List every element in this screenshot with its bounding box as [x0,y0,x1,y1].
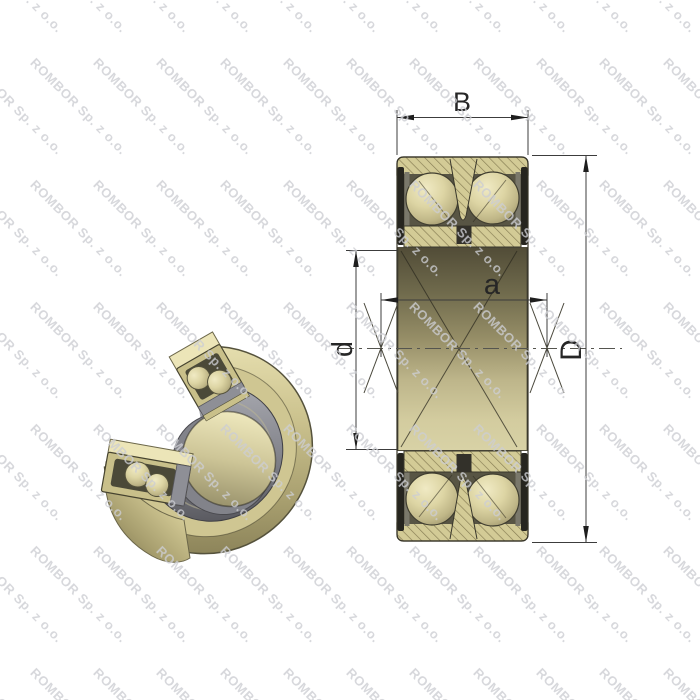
arrowhead [397,115,414,121]
arrowhead [381,297,398,303]
ball-top-left [406,173,458,225]
arrowhead [353,251,359,268]
seal-left-bottom [398,453,405,531]
seal-right-bottom [521,453,528,531]
arrowhead [353,433,359,450]
arrowhead [511,115,528,121]
dim-label-D: D [555,339,588,361]
dim-label-d: d [327,341,359,357]
dim-label-B: B [453,87,471,117]
inner-ring-split-notch-top [457,226,472,244]
ball-top-right [467,172,519,224]
bottom-section [397,451,528,541]
technical-drawing-canvas: B a d D ROMBOR Sp. z o.o.ROMBOR Sp. z o.… [0,0,700,700]
seal-right-top [521,167,528,245]
top-section [397,157,528,247]
arrowhead [583,156,589,173]
seal-left-top [398,167,405,245]
ball-bottom-right [467,474,519,526]
bearing-drawing: B a d D [0,0,700,700]
inner-ring-split-notch-bottom [457,454,472,472]
arrowhead [530,297,547,303]
pictorial-view [40,304,355,597]
dim-label-a: a [484,269,501,301]
ball-bottom-left [406,473,458,525]
arrowhead [583,526,589,543]
